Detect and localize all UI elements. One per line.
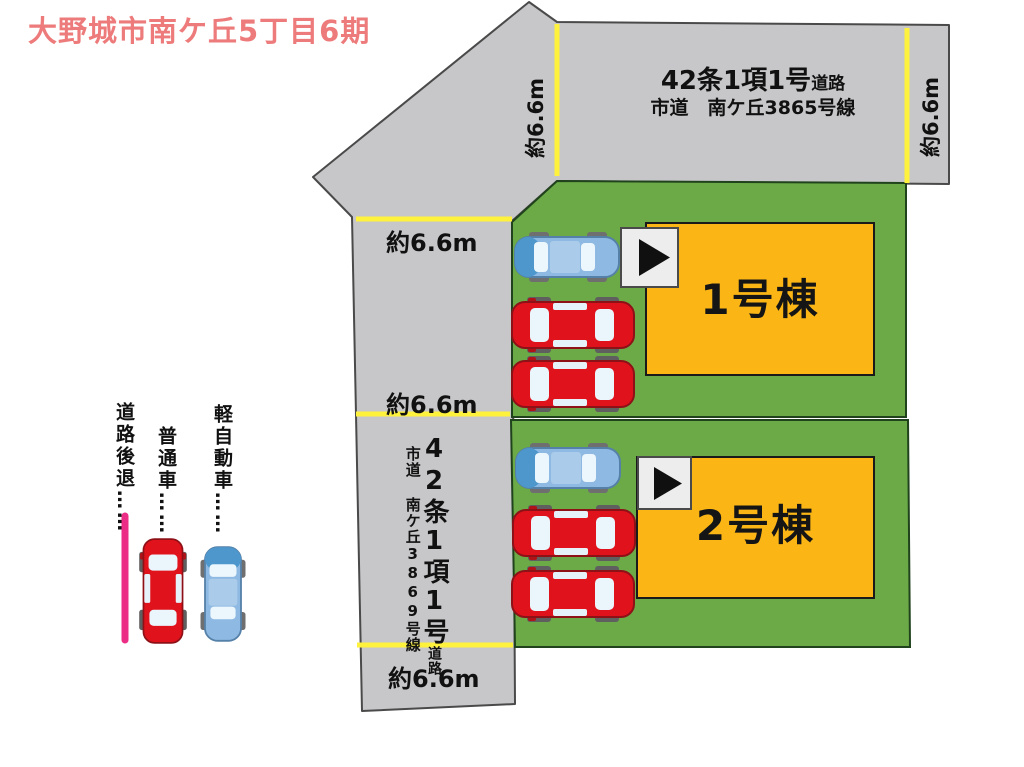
kei-car-icon-lot1 [515,232,619,282]
kei-car-icon-legend [201,547,246,641]
top-road-street-name: 市道 南ケ丘3865号線 [557,97,949,120]
left-road-regulation: 42条1項1号道路 [420,434,447,660]
building-1-label: 1号棟 [646,223,874,369]
regular-car-icon-lot2-b [512,566,634,622]
width-label-top-road-right: 約6.6m [915,73,945,161]
left-road-name: 42条1項1号道路 市道 南ケ丘3869号線 [404,434,447,660]
legend-kei-car-label: 軽自動車…… [212,404,231,536]
regular-car-icon-lot1-a [512,297,634,353]
top-road-name: 42条1項1号道路 市道 南ケ丘3865号線 [557,66,949,120]
width-label-left-road-middle: 約6.6m [386,385,478,420]
kei-car-icon-lot2 [516,443,620,493]
regular-car-icon-legend [139,539,187,643]
legend-regular-car-label: 普通車…… [156,426,175,536]
top-road-regulation: 42条1項1号道路 [557,66,949,97]
regular-car-icon-lot2-a [513,505,635,561]
width-label-top-road-left: 約6.6m [520,74,550,162]
page-title: 大野城市南ケ丘5丁目6期 [28,8,370,50]
left-road-street-name: 市道 南ケ丘3869号線 [404,434,420,660]
site-plan: 大野城市南ケ丘5丁目6期 42条1項1号道路 市道 南ケ丘3865号線 約6.6… [0,0,1024,767]
regular-car-icon-lot1-b [512,356,634,412]
legend-setback-label: 道路後退…… [114,402,133,534]
width-label-left-road-top: 約6.6m [386,223,478,258]
building-2-label: 2号棟 [637,457,874,587]
